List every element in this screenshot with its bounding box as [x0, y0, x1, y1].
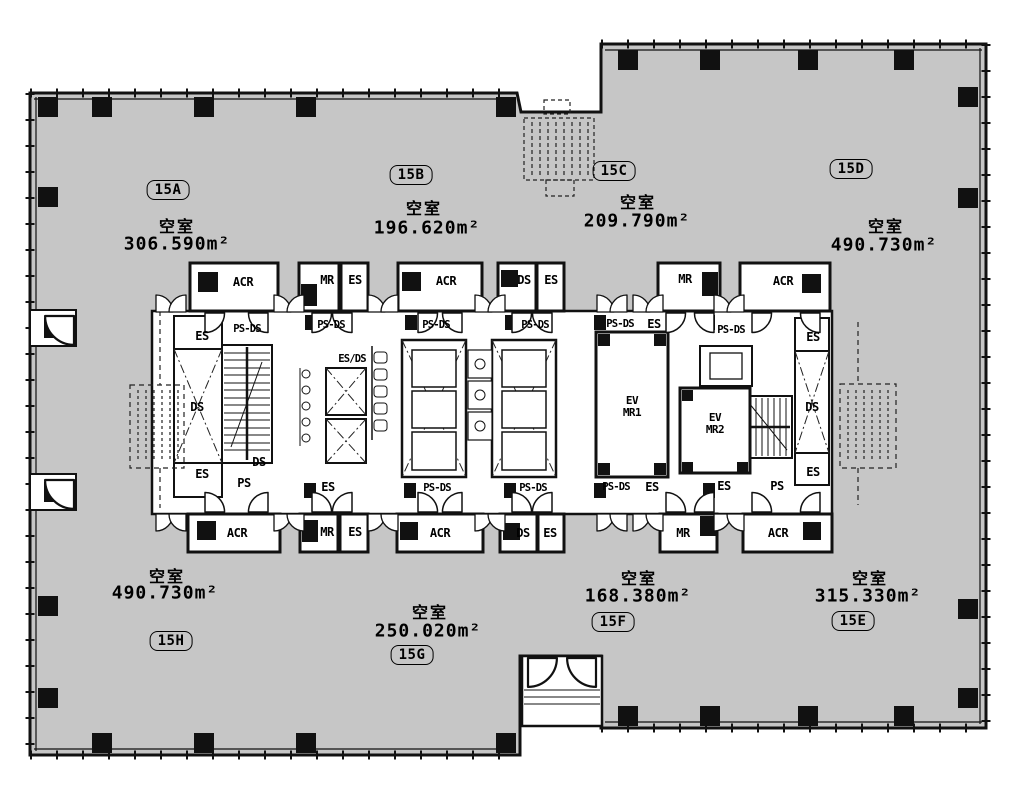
- room-label-ps: PS: [770, 479, 783, 493]
- unit-badge-15e: 15E: [832, 611, 875, 631]
- room-label-ps-ds: PS-DS: [317, 319, 345, 331]
- room-label-ev-mr1: EVMR1: [623, 395, 641, 419]
- room-label-mr: MR: [676, 526, 689, 540]
- room-label-ps-ds: PS-DS: [519, 482, 547, 494]
- room-label-es: ES: [645, 480, 658, 494]
- unit-area-15f: 168.380m²: [585, 586, 692, 607]
- room-label-es-ds: ES/DS: [338, 353, 366, 365]
- room-label-mr: MR: [320, 273, 333, 287]
- unit-area-15g: 250.020m²: [375, 621, 482, 642]
- room-label-es: ES: [348, 273, 361, 287]
- floor-plan-drawing: [0, 0, 1019, 788]
- unit-badge-15a: 15A: [147, 180, 190, 200]
- room-label-ps-ds: PS-DS: [606, 318, 634, 330]
- unit-badge-15c: 15C: [593, 161, 636, 181]
- room-label-ds: DS: [190, 400, 203, 414]
- unit-area-15a: 306.590m²: [124, 234, 231, 255]
- room-label-ds: DS: [517, 273, 530, 287]
- room-label-ds: DS: [516, 526, 529, 540]
- room-label-ps-ds: PS-DS: [233, 323, 261, 335]
- unit-area-15b: 196.620m²: [374, 218, 481, 239]
- unit-status-15g: 空室: [412, 599, 448, 623]
- room-label-es: ES: [321, 480, 334, 494]
- room-label-ps-ds: PS-DS: [602, 481, 630, 493]
- unit-area-15c: 209.790m²: [584, 211, 691, 232]
- room-label-acr: ACR: [233, 275, 253, 289]
- room-label-ev-mr2: EVMR2: [706, 412, 724, 436]
- ev-machine-box: [700, 346, 752, 386]
- unit-status-15b: 空室: [406, 195, 442, 219]
- room-label-es: ES: [195, 467, 208, 481]
- room-label-ds: DS: [805, 400, 818, 414]
- room-label-acr: ACR: [773, 274, 793, 288]
- unit-area-15h: 490.730m²: [112, 583, 219, 604]
- room-label-es: ES: [806, 465, 819, 479]
- room-label-acr: ACR: [436, 274, 456, 288]
- unit-status-15d: 空室: [868, 213, 904, 237]
- unit-badge-15h: 15H: [150, 631, 193, 651]
- room-label-es: ES: [543, 526, 556, 540]
- unit-badge-15g: 15G: [391, 645, 434, 665]
- room-label-es: ES: [717, 479, 730, 493]
- floor-plan: 15A 空室 306.590m² 15B 空室 196.620m² 15C 空室…: [0, 0, 1019, 788]
- room-label-mr: MR: [320, 525, 333, 539]
- unit-badge-15d: 15D: [830, 159, 873, 179]
- room-label-ps-ds: PS-DS: [717, 324, 745, 336]
- room-label-es: ES: [544, 273, 557, 287]
- room-label-ps-ds: PS-DS: [422, 319, 450, 331]
- unit-badge-15b: 15B: [390, 165, 433, 185]
- room-label-ps: PS: [237, 476, 250, 490]
- room-label-acr: ACR: [227, 526, 247, 540]
- unit-badge-15f: 15F: [592, 612, 635, 632]
- room-label-ps-ds: PS-DS: [521, 319, 549, 331]
- unit-area-15d: 490.730m²: [831, 235, 938, 256]
- unit-area-15e: 315.330m²: [815, 586, 922, 607]
- room-label-es: ES: [647, 317, 660, 331]
- unit-status-15c: 空室: [620, 189, 656, 213]
- room-label-es: ES: [806, 330, 819, 344]
- room-label-mr: MR: [678, 272, 691, 286]
- room-label-acr: ACR: [768, 526, 788, 540]
- room-label-ds: DS: [252, 455, 265, 469]
- left-staircase: [222, 345, 272, 463]
- room-label-es: ES: [348, 525, 361, 539]
- room-label-es: ES: [195, 329, 208, 343]
- room-label-acr: ACR: [430, 526, 450, 540]
- room-label-ps-ds: PS-DS: [423, 482, 451, 494]
